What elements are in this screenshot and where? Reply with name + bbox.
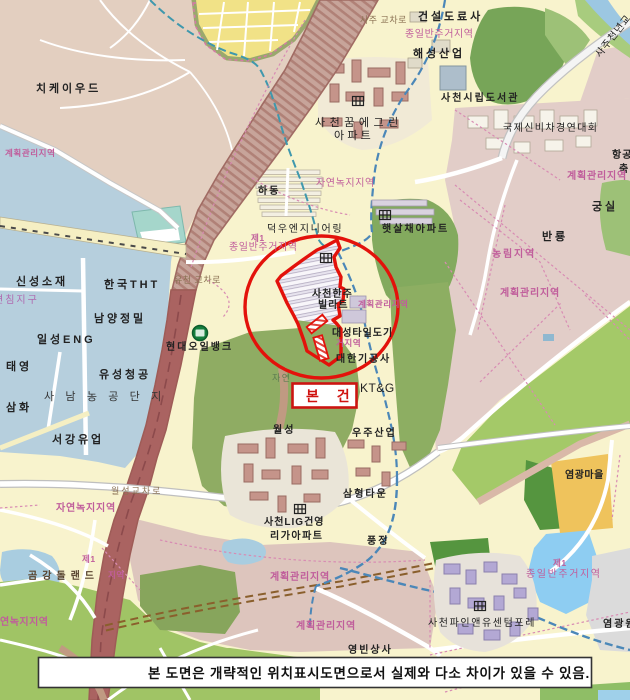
svg-text:사주 교차로: 사주 교차로 [360, 14, 407, 25]
svg-text:풍정: 풍정 [367, 534, 389, 547]
svg-text:건설도료사: 건설도료사 [418, 9, 483, 23]
svg-text:치케이우드: 치케이우드 [36, 81, 101, 95]
svg-text:자연: 자연 [272, 373, 292, 383]
svg-text:사천LIG건영: 사천LIG건영 [264, 515, 324, 528]
svg-text:계획관리지역: 계획관리지역 [5, 148, 56, 158]
svg-text:삼형타운: 삼형타운 [343, 487, 388, 500]
svg-text:지역: 지역 [108, 570, 125, 580]
svg-text:종일반주거지역: 종일반주거지역 [526, 568, 602, 580]
svg-text:KT&G: KT&G [360, 381, 395, 395]
svg-text:일성ENG: 일성ENG [37, 332, 96, 346]
svg-text:해성산업: 해성산업 [413, 46, 465, 60]
svg-text:우주산업: 우주산업 [352, 426, 397, 439]
svg-text:대한기공사: 대한기공사 [336, 352, 391, 365]
svg-text:항공: 항공 [612, 148, 630, 161]
svg-text:사천한주: 사천한주 [312, 287, 353, 300]
svg-text:거지역: 거지역 [336, 338, 361, 348]
svg-text:사천파인앤유센텀포레: 사천파인앤유센텀포레 [428, 617, 536, 629]
svg-text:월성: 월성 [273, 423, 295, 436]
svg-text:월성교차로: 월성교차로 [111, 485, 162, 496]
svg-text:한국THT: 한국THT [104, 277, 160, 291]
svg-text:종일반주거지역: 종일반주거지역 [405, 28, 474, 40]
svg-text:연녹지지역: 연녹지지역 [0, 615, 49, 628]
svg-text:현대오일뱅크: 현대오일뱅크 [166, 340, 233, 353]
svg-text:계획관리지역: 계획관리지역 [567, 169, 627, 182]
svg-text:하동: 하동 [258, 184, 280, 197]
svg-text:유천 교차로: 유천 교차로 [174, 274, 221, 285]
svg-text:궁실: 궁실 [592, 199, 618, 213]
svg-text:서강유업: 서강유업 [52, 432, 104, 446]
svg-text:자연녹지지역: 자연녹지지역 [316, 177, 375, 189]
svg-text:국제신비차경연대회: 국제신비차경연대회 [503, 121, 598, 134]
svg-text:삼화: 삼화 [6, 400, 32, 414]
svg-text:제1: 제1 [553, 558, 567, 568]
svg-text:리가아파트: 리가아파트 [270, 529, 324, 542]
svg-text:본 도면은 개략적인 위치표시도면으로서 실제와 다소 차이: 본 도면은 개략적인 위치표시도면으로서 실제와 다소 차이가 있을 수 있음. [148, 665, 590, 681]
svg-text:계획관리지역: 계획관리지역 [296, 619, 356, 632]
svg-text:농림지역: 농림지역 [492, 247, 536, 260]
svg-text:자연녹지지역: 자연녹지지역 [56, 501, 116, 514]
svg-text:아파트: 아파트 [334, 129, 374, 142]
svg-text:계획관리지역: 계획관리지역 [358, 299, 409, 309]
svg-text:염광마을: 염광마을 [565, 468, 604, 481]
svg-text:본 건: 본 건 [306, 388, 357, 404]
svg-text:유성청공: 유성청공 [99, 367, 151, 381]
svg-text:계획관리지역: 계획관리지역 [270, 570, 330, 583]
svg-text:반룡: 반룡 [542, 229, 568, 243]
svg-text:염광원: 염광원 [603, 617, 630, 630]
svg-text:종일반주거지역: 종일반주거지역 [229, 241, 298, 253]
svg-text:햇살채아파트: 햇살채아파트 [382, 222, 449, 235]
svg-text:계획관리지역: 계획관리지역 [500, 286, 560, 299]
svg-text:신성소재: 신성소재 [16, 274, 68, 288]
svg-text:곰강돌랜드: 곰강돌랜드 [28, 569, 99, 582]
svg-text:사남농공단지: 사남농공단지 [44, 390, 173, 403]
svg-text:빌라트: 빌라트 [318, 298, 349, 311]
svg-text:덕우엔지니어링: 덕우엔지니어링 [267, 223, 343, 235]
svg-text:사천꿈에그린: 사천꿈에그린 [315, 115, 403, 129]
svg-text:편침지구: 편침지구 [0, 294, 39, 306]
svg-text:영빈상사: 영빈상사 [348, 643, 393, 656]
svg-text:제1: 제1 [82, 554, 96, 564]
svg-text:태영: 태영 [6, 359, 32, 373]
svg-text:사천시립도서관: 사천시립도서관 [441, 91, 519, 104]
svg-text:남양정밀: 남양정밀 [94, 311, 146, 325]
